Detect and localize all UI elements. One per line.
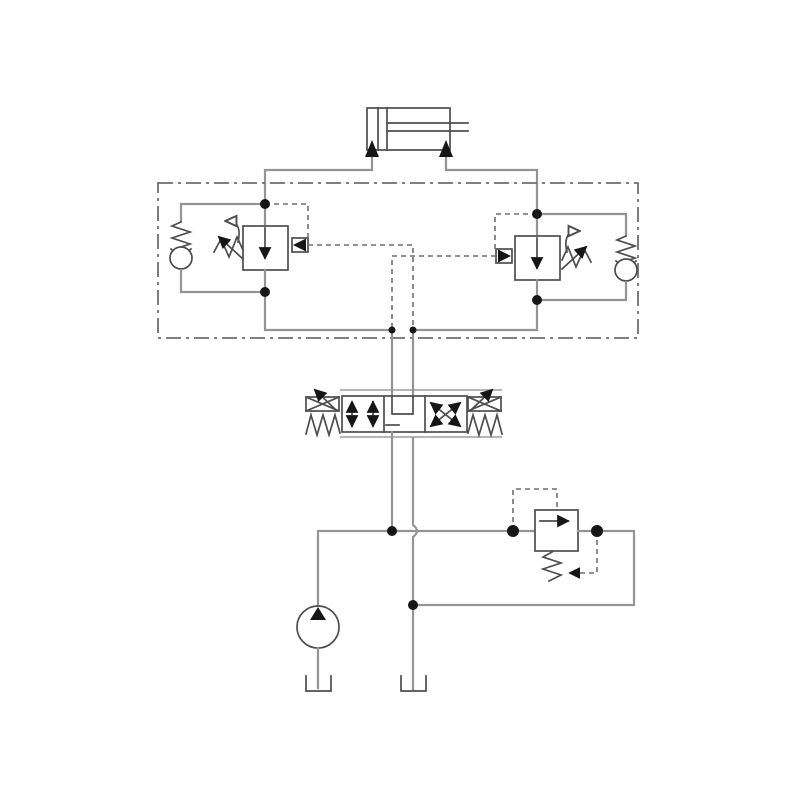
- cb-left-external-pilot: [308, 245, 413, 330]
- pressure-relief-valve: [413, 489, 634, 605]
- dcv-left-spring: [306, 415, 340, 435]
- right-counterbalance-valve: [392, 214, 637, 330]
- relief-spring: [543, 552, 561, 581]
- hydraulic-cylinder: [365, 108, 468, 157]
- left-counterbalance-valve: [170, 204, 413, 330]
- tank-line-T: [413, 437, 417, 605]
- hydraulic-schematic: [0, 0, 800, 800]
- cb-left-work-line: [265, 292, 392, 330]
- diagram-canvas: [0, 0, 800, 800]
- cb-right-check-ball: [615, 259, 637, 281]
- cb-left-check-spring: [172, 222, 190, 247]
- pressure-tank-lines: [392, 432, 417, 689]
- junction-dot: [387, 526, 397, 536]
- junction-dot: [410, 327, 417, 334]
- cb-left-check-ball: [170, 247, 192, 269]
- cylinder-line-A: [265, 157, 372, 204]
- junction-dot: [408, 600, 418, 610]
- cb-left-check-branch-bottom: [181, 269, 265, 292]
- cb-right-check-branch-bottom: [537, 281, 626, 300]
- cb-right-check-spring: [617, 236, 635, 261]
- junction-dot: [389, 327, 396, 334]
- junction-dot: [532, 209, 542, 219]
- counterbalance-manifold-enclosure: [158, 183, 638, 338]
- relief-return-line: [413, 531, 634, 605]
- pump-circuit: [297, 531, 535, 691]
- junction-dot: [507, 525, 519, 537]
- junction-dot: [591, 525, 603, 537]
- cb-right-work-line: [413, 300, 537, 330]
- cylinder-lines: [265, 157, 537, 214]
- junction-dot: [260, 199, 270, 209]
- cylinder-barrel: [367, 108, 450, 150]
- directional-control-valve: [306, 390, 502, 437]
- cb-right-check-branch-top: [537, 214, 626, 236]
- cb-left-check-branch-top: [181, 204, 265, 222]
- cylinder-line-B: [446, 157, 537, 214]
- junction-dot: [532, 295, 542, 305]
- cb-right-external-pilot: [392, 256, 496, 330]
- junction-dot: [260, 287, 270, 297]
- supply-line: [318, 531, 535, 606]
- dcv-right-spring: [468, 415, 502, 435]
- relief-body: [535, 510, 578, 551]
